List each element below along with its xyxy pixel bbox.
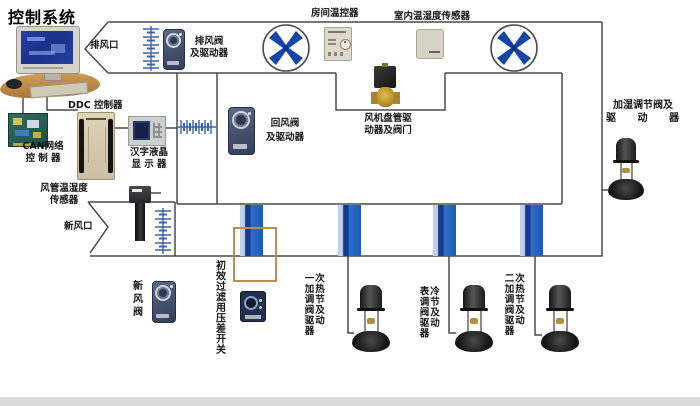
label-exhaust-vent: 排风口 <box>90 40 119 52</box>
label-return-damper: 回风阀 及驱动器 <box>261 117 309 146</box>
flex-connector-icon <box>178 120 216 134</box>
label-filter-switch: 初效过滤用压差开关 <box>213 260 224 364</box>
indoor-temp-humidity-sensor <box>416 29 444 59</box>
preheat-coil-bar <box>338 205 361 256</box>
label-fresh-damper: 新风阀 <box>130 280 141 322</box>
hvac-control-system-diagram: 控制系统 排风口 排风阀 及驱动器 房间温控器 室内温湿度传感器 DDC 控制器… <box>0 0 700 406</box>
room-thermostat <box>324 27 352 61</box>
reheat-coil-bar <box>520 205 543 256</box>
label-duct-sensor: 风管温湿度 传感器 <box>36 183 92 207</box>
footer-strip <box>0 397 700 406</box>
monitor-screen <box>21 31 73 64</box>
label-fresh-vent: 新风口 <box>64 221 93 233</box>
filter-pressure-switch <box>240 291 266 322</box>
label-reheat-valve: 二加调阀驱器 次热节及动 <box>503 273 523 336</box>
ddc-controller <box>77 112 115 180</box>
cooling-coil-bar <box>433 205 456 256</box>
page-title: 控制系统 <box>8 4 76 28</box>
lcd-display <box>128 116 166 146</box>
return-damper-actuator <box>228 107 255 155</box>
label-indoor-sensor: 室内温湿度传感器 <box>394 11 470 23</box>
label-can-controller: CAN网络 控 制 器 <box>20 141 66 165</box>
filter-frame <box>233 227 277 282</box>
label-ddc: DDC 控制器 <box>68 100 123 112</box>
label-fan-coil: 风机盘管驱 动器及阀门 <box>357 113 419 137</box>
exhaust-fan-icon <box>263 25 309 71</box>
label-room-thermostat: 房间温控器 <box>311 8 359 20</box>
label-preheat-valve: 一加调阀驱器 次热节及动 <box>303 273 323 336</box>
exhaust-damper-actuator <box>163 29 185 70</box>
mouse <box>6 79 22 89</box>
supply-fan-icon <box>491 25 537 71</box>
crt-monitor <box>16 26 80 74</box>
label-lcd-display: 汉字液晶 显 示 器 <box>124 147 174 171</box>
fresh-air-damper-actuator <box>152 281 176 323</box>
label-exhaust-damper: 排风阀 及驱动器 <box>186 36 232 60</box>
label-cooling-valve: 表调阀驱器 冷节及动 <box>418 286 438 339</box>
exhaust-louver-icon <box>143 26 159 71</box>
fresh-air-louver-icon <box>155 208 171 254</box>
label-humidify-valve: 加湿调节阀及 驱 动 器 <box>606 100 680 125</box>
